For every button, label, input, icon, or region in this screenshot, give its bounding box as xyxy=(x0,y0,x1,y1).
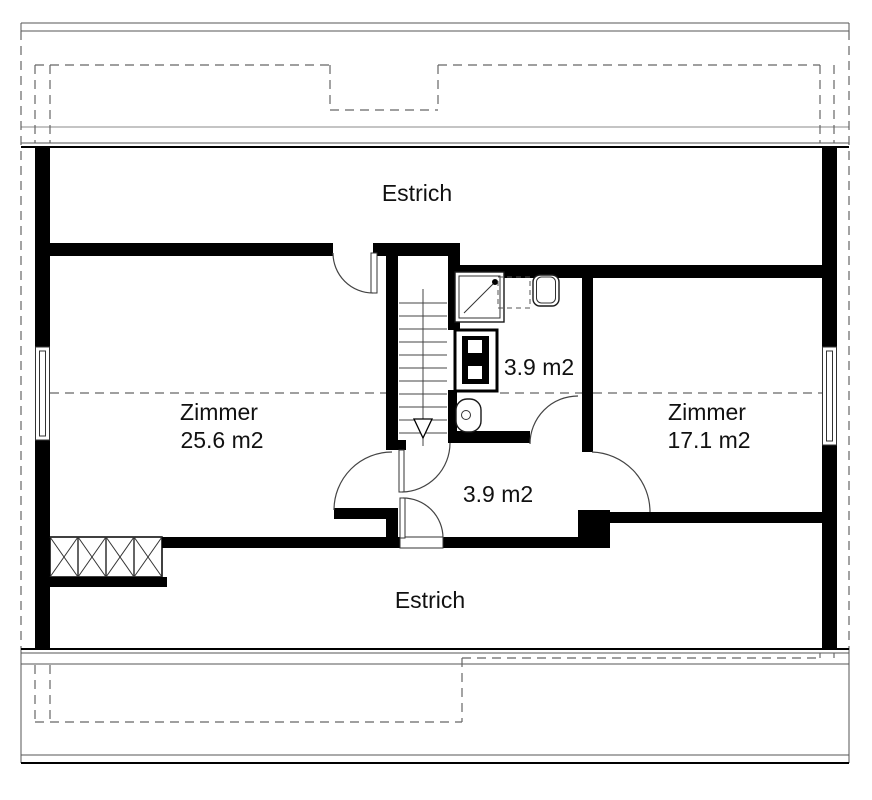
label-room-left-area: 25.6 m2 xyxy=(180,427,263,453)
door-attic-top xyxy=(333,253,377,293)
stair-down-arrow xyxy=(414,419,432,438)
door-leaf xyxy=(399,450,404,492)
hatched-storage xyxy=(50,537,167,587)
door-room-left xyxy=(334,452,398,519)
door-swing-arc xyxy=(334,452,392,510)
wall-left-lower xyxy=(35,440,50,650)
label-room-right-area: 17.1 m2 xyxy=(667,427,750,453)
shower-head xyxy=(492,279,498,285)
window-frame xyxy=(823,347,837,445)
duct-flue xyxy=(468,366,482,379)
wall-bottom-right xyxy=(580,512,837,523)
duct-block xyxy=(455,330,497,391)
door-swing-arc xyxy=(403,498,443,538)
door-bathroom xyxy=(530,396,578,444)
toilet-bowl xyxy=(456,399,481,432)
stair-wall-left-jog xyxy=(386,440,406,450)
wall-bottom-left xyxy=(162,537,400,548)
wall-top-left xyxy=(35,243,333,256)
stair-wall-left xyxy=(386,243,398,440)
door-swing-arc xyxy=(530,396,578,444)
window-frame xyxy=(36,347,50,440)
label-bathroom-area: 3.9 m2 xyxy=(504,354,574,380)
storage-base-wall xyxy=(50,577,167,587)
label-attic-bottom: Estrich xyxy=(395,587,465,613)
window-right xyxy=(823,347,837,445)
door-room-right xyxy=(592,452,650,512)
wall-bath-right xyxy=(582,265,593,452)
label-room-left-name: Zimmer xyxy=(180,399,258,425)
door-swing-arc xyxy=(333,253,373,293)
window-left xyxy=(36,347,50,440)
door-swing-arc xyxy=(592,452,650,512)
door-leaf xyxy=(371,253,377,293)
shower xyxy=(455,272,530,322)
label-attic-top: Estrich xyxy=(382,180,452,206)
label-room-right-name: Zimmer xyxy=(668,399,746,425)
wall-bath-bottom xyxy=(448,431,530,443)
staircase xyxy=(399,289,447,446)
interior-walls xyxy=(35,243,837,548)
wall-top-right xyxy=(448,265,837,278)
door-leaf-black xyxy=(334,508,398,519)
floor-plan: Estrich Zimmer 25.6 m2 3.9 m2 3.9 m2 Zim… xyxy=(0,0,872,800)
duct-flue xyxy=(468,340,482,353)
label-hallway-area: 3.9 m2 xyxy=(463,481,533,507)
toilet xyxy=(456,399,481,432)
door-stair xyxy=(399,443,450,492)
floor-plan-drawing: Estrich Zimmer 25.6 m2 3.9 m2 3.9 m2 Zim… xyxy=(0,0,872,800)
wall-right-upper xyxy=(822,147,837,347)
sink xyxy=(533,275,559,306)
wall-right-lower xyxy=(822,445,837,650)
door-swing-arc xyxy=(402,443,450,492)
door-attic-bottom xyxy=(400,498,443,538)
wall-bottom-mid xyxy=(443,537,582,548)
door-threshold xyxy=(400,537,443,548)
door-leaf xyxy=(400,498,405,538)
